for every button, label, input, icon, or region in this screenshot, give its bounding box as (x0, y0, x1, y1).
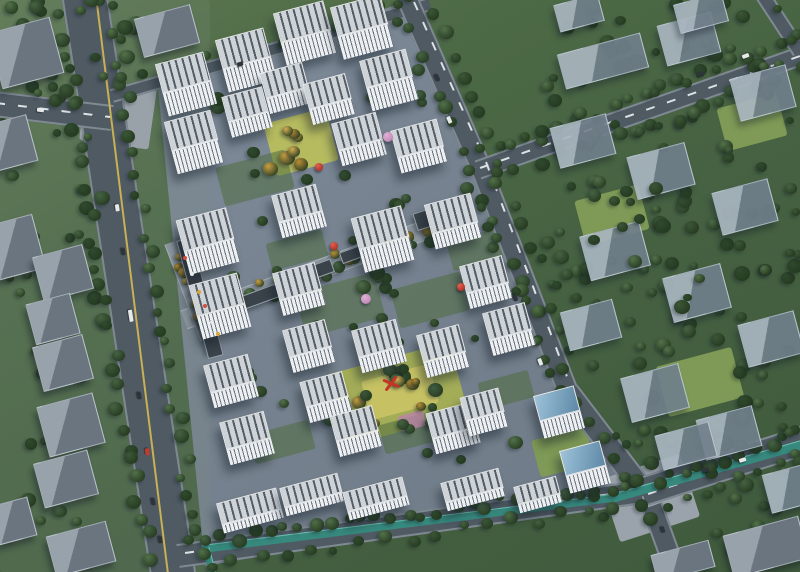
tree (422, 448, 432, 458)
tree (584, 417, 594, 427)
tree (491, 167, 503, 178)
tree (622, 440, 631, 448)
tree (398, 364, 409, 374)
context-building-ghost (553, 0, 605, 32)
tree (88, 209, 101, 221)
tree (535, 158, 550, 171)
tree (174, 429, 188, 442)
tree (282, 550, 295, 562)
tree (682, 78, 692, 87)
tree (160, 337, 169, 345)
tree (683, 494, 691, 502)
tree (263, 162, 278, 176)
tree (5, 1, 19, 14)
tree (90, 53, 101, 63)
tree (537, 254, 547, 264)
red-sphere-sculpture (457, 283, 465, 291)
tree (726, 44, 736, 53)
tree (504, 511, 517, 523)
tree (652, 48, 660, 55)
tree (535, 125, 548, 137)
tree (585, 507, 594, 515)
tree (554, 250, 569, 264)
tree (507, 164, 519, 175)
car (137, 392, 142, 399)
tree (541, 81, 553, 92)
car (121, 248, 126, 255)
tree (475, 144, 484, 152)
tree (725, 146, 733, 153)
tree (64, 123, 79, 137)
tree (183, 535, 194, 545)
tree (552, 281, 562, 290)
tree (712, 65, 722, 74)
tree (161, 384, 171, 393)
tree (36, 516, 46, 525)
tree (593, 176, 606, 188)
tree (187, 510, 197, 520)
tree (712, 528, 723, 538)
tree (663, 346, 675, 357)
umbrella-dot (203, 304, 207, 308)
tree (674, 115, 687, 127)
tree (124, 91, 137, 103)
tree (439, 25, 454, 39)
tree (91, 278, 105, 290)
tree (556, 363, 569, 375)
tree (649, 182, 663, 195)
tree (353, 536, 365, 547)
tree (429, 531, 440, 541)
tree (117, 20, 133, 35)
tree (608, 486, 620, 497)
tree (430, 319, 439, 327)
tree (505, 139, 516, 149)
tree (456, 455, 466, 464)
tree (777, 402, 787, 411)
tree (329, 547, 337, 555)
tree (711, 333, 725, 346)
tree (384, 513, 397, 525)
tree (150, 285, 164, 298)
tree (197, 548, 210, 560)
tree (130, 469, 144, 482)
tree (255, 279, 264, 287)
tree (715, 482, 726, 492)
tree (477, 203, 487, 212)
tree (53, 505, 67, 518)
tree (635, 127, 645, 136)
tree (541, 236, 555, 249)
tree (72, 517, 81, 526)
tree (77, 142, 88, 152)
tree (393, 0, 403, 9)
tree (310, 518, 324, 531)
tree (787, 259, 800, 273)
tree (561, 269, 573, 280)
tree (733, 471, 745, 482)
tree (200, 535, 211, 545)
tree (473, 106, 486, 118)
tree (620, 186, 633, 198)
tree (626, 198, 635, 206)
tree (59, 84, 74, 98)
tree (25, 438, 37, 449)
tree (648, 288, 657, 296)
tree (112, 350, 124, 361)
tree (758, 370, 768, 379)
umbrella-dot (210, 320, 214, 324)
pink-blossom-tree (361, 294, 371, 304)
tree (488, 177, 501, 189)
tree (458, 72, 472, 85)
tree (257, 216, 268, 226)
tree (567, 182, 576, 190)
umbrella-dot (197, 290, 201, 294)
tree (736, 10, 750, 23)
umbrella-dot (216, 332, 220, 336)
tree (34, 89, 42, 97)
tree (277, 522, 286, 531)
tree (511, 201, 522, 211)
tree (785, 183, 796, 193)
tree (755, 46, 767, 57)
tree (403, 23, 414, 33)
tree (507, 258, 520, 270)
tree (682, 325, 696, 338)
tree (588, 235, 599, 245)
tree (736, 312, 747, 322)
tree (588, 360, 600, 371)
tree (520, 132, 530, 141)
tree (185, 454, 196, 464)
tree (635, 439, 643, 447)
tree (665, 257, 679, 270)
tree (487, 242, 499, 253)
car (145, 448, 150, 455)
tree (141, 204, 151, 213)
tree (409, 536, 421, 547)
tree (207, 563, 218, 572)
tree (438, 100, 453, 114)
tree (412, 64, 425, 76)
tree (115, 72, 127, 83)
tree (654, 477, 667, 489)
tree (431, 510, 442, 520)
umbrella-dot (183, 256, 187, 260)
tree (514, 217, 528, 230)
tree (48, 82, 58, 91)
tree (634, 214, 645, 224)
aerial-masterplan-rendering (0, 0, 800, 572)
tree (482, 222, 493, 233)
tree (633, 357, 647, 370)
tree (105, 363, 120, 377)
tree (415, 513, 425, 522)
tree (651, 255, 661, 264)
tree (451, 53, 462, 63)
car (115, 204, 120, 211)
tree (694, 274, 704, 283)
tree (556, 228, 565, 236)
context-building-ghost (737, 310, 800, 368)
tree (465, 91, 478, 103)
tree (685, 221, 699, 234)
tree (776, 458, 786, 467)
tree (733, 366, 747, 379)
pink-blossom-tree (383, 132, 393, 142)
tree (760, 265, 770, 274)
tree (100, 295, 112, 306)
tree (630, 474, 643, 486)
tree (571, 293, 582, 303)
tree (53, 129, 61, 136)
tree (548, 94, 561, 106)
tree (116, 109, 129, 121)
tree (720, 238, 734, 251)
tree (49, 94, 62, 106)
tree (164, 358, 175, 368)
tree (176, 412, 189, 424)
tree (753, 398, 765, 409)
tree (534, 519, 545, 529)
tree (756, 162, 767, 172)
tree (723, 53, 736, 65)
tree (508, 436, 523, 450)
tree (655, 219, 671, 233)
tree (718, 456, 732, 469)
tree (75, 155, 89, 168)
tree (116, 35, 126, 44)
tree (224, 554, 237, 566)
tree (94, 191, 109, 205)
tree (703, 490, 713, 499)
tree (615, 16, 625, 26)
tree (257, 550, 270, 562)
tree (124, 451, 138, 464)
tree (608, 453, 620, 464)
tree (786, 117, 794, 124)
context-building-ghost (560, 299, 623, 352)
tree (189, 524, 202, 536)
tree (164, 404, 175, 414)
tree (625, 317, 636, 327)
car (158, 536, 163, 543)
tree (481, 518, 493, 529)
tree (623, 94, 633, 103)
tree (785, 249, 795, 258)
tree (153, 308, 163, 317)
tree (554, 506, 567, 518)
tree (636, 342, 646, 352)
tree (650, 88, 660, 97)
tree (128, 170, 139, 180)
tree (734, 266, 750, 281)
tree (635, 499, 648, 511)
tree (279, 399, 289, 409)
tree (654, 122, 663, 131)
red-sphere-sculpture (330, 242, 338, 250)
tree (481, 127, 494, 139)
tree (588, 189, 602, 202)
tree (574, 107, 587, 119)
umbrella-dot (190, 272, 194, 276)
tree (471, 335, 479, 343)
tree (460, 521, 468, 529)
tree (491, 233, 502, 243)
tree (427, 8, 439, 19)
tree (136, 514, 149, 526)
tree (111, 61, 121, 70)
tree (545, 303, 557, 314)
tree (74, 230, 84, 239)
tree (378, 530, 391, 542)
tree (734, 240, 746, 251)
car (151, 498, 156, 505)
tree (606, 502, 619, 514)
tree (639, 424, 652, 436)
tree (121, 130, 135, 143)
tree (130, 191, 139, 200)
tree (143, 553, 158, 567)
tree (714, 97, 725, 107)
tree (294, 158, 308, 170)
tree (617, 222, 628, 232)
tree (613, 127, 627, 140)
tree (730, 493, 742, 504)
tree (796, 61, 800, 73)
tree (663, 503, 673, 512)
tree (416, 51, 429, 63)
tree (609, 196, 620, 206)
tree (325, 517, 339, 530)
tree (622, 283, 632, 292)
tree (416, 402, 426, 411)
tree (16, 288, 25, 296)
tree (463, 165, 474, 175)
tree (232, 534, 247, 548)
tree (101, 321, 111, 330)
tree (652, 206, 660, 214)
tree (781, 272, 795, 285)
red-sphere-sculpture (315, 163, 323, 171)
tree (524, 242, 537, 254)
tree (792, 208, 800, 216)
tree (688, 107, 701, 119)
context-building-ghost (711, 178, 778, 236)
tree (305, 545, 317, 556)
